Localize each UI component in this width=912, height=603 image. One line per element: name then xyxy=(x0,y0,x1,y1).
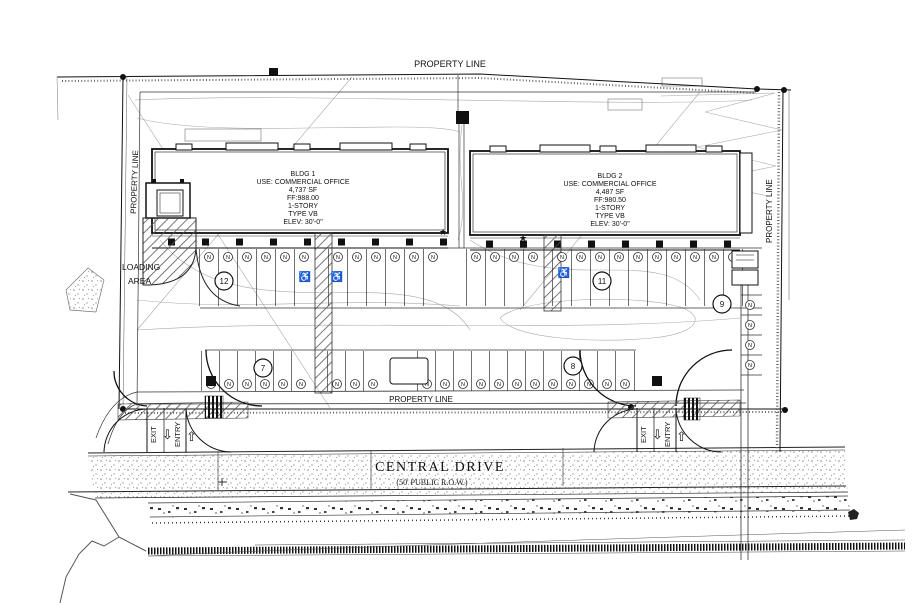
keynote-12: 12 xyxy=(220,277,229,286)
keynote-7: 7 xyxy=(261,364,266,373)
parking-stall-marker: N xyxy=(264,255,268,261)
entry-arrow-icon: ⇧ xyxy=(676,429,687,444)
parking-stall-marker: N xyxy=(461,382,465,388)
survey-point xyxy=(754,86,760,92)
entry-arrow-icon: ⇧ xyxy=(186,429,197,444)
parking-stall-marker: N xyxy=(748,363,752,369)
parking-stall-marker: N xyxy=(474,255,478,261)
street-name: CENTRAL DRIVE xyxy=(375,460,505,475)
exit-label-left: EXIT xyxy=(149,426,158,443)
loading-area-label-1: LOADING xyxy=(122,262,160,272)
parking-stall-marker: N xyxy=(512,255,516,261)
bldg1-stories: 1-STORY xyxy=(288,203,318,210)
keynote-9: 9 xyxy=(720,300,725,309)
exit-label-right: EXIT xyxy=(639,426,648,443)
parking-stall-marker: N xyxy=(748,343,752,349)
parking-stall-marker: N xyxy=(336,255,340,261)
street-row-label: (50' PUBLIC R.O.W.) xyxy=(396,478,467,487)
keynote-11: 11 xyxy=(598,277,607,286)
bldg2-type: TYPE VB xyxy=(595,213,625,220)
parking-stall-marker: N xyxy=(515,382,519,388)
bldg2-elev: ELEV: 30'-0" xyxy=(590,221,630,228)
parking-stall-marker: N xyxy=(299,382,303,388)
star-marker-icon: ★ xyxy=(519,233,527,243)
parking-stall-marker: N xyxy=(353,382,357,388)
parking-stall-marker: N xyxy=(533,382,537,388)
parking-stall-marker: N xyxy=(598,255,602,261)
parking-stall-marker: N xyxy=(655,255,659,261)
bldg1-name: BLDG 1 xyxy=(291,171,316,178)
bldg1-use: USE: COMMERCIAL OFFICE xyxy=(256,179,349,186)
bldg1-type: TYPE VB xyxy=(288,211,318,218)
parking-stall-marker: N xyxy=(636,255,640,261)
driveway-left xyxy=(104,350,262,452)
parking-stall-marker: N xyxy=(560,255,564,261)
parking-stall-marker: N xyxy=(712,255,716,261)
parking-stall-marker: N xyxy=(227,382,231,388)
bldg2-area: 4,487 SF xyxy=(596,189,624,196)
parking-stall-marker: N xyxy=(605,382,609,388)
parking-stall-marker: N xyxy=(748,323,752,329)
accessible-parking-icon: ♿ xyxy=(558,266,570,279)
parking-stall-marker: N xyxy=(674,255,678,261)
parking-stall-marker: N xyxy=(283,255,287,261)
bldg1-ff: FF:988.00 xyxy=(287,195,319,202)
monument-marker xyxy=(269,68,278,75)
parking-stall-marker: N xyxy=(281,382,285,388)
contour-lines xyxy=(128,77,782,408)
parking-stall-marker: N xyxy=(579,255,583,261)
survey-point xyxy=(120,74,126,80)
entry-label-right: ENTRY xyxy=(663,422,672,447)
parking-stall-marker: N xyxy=(207,255,211,261)
keynote-8: 8 xyxy=(571,362,576,371)
bldg1-area: 4,737 SF xyxy=(289,187,317,194)
utility-box xyxy=(456,111,469,124)
parking-stall-marker: N xyxy=(479,382,483,388)
utility-lines xyxy=(456,75,469,248)
existing-structures xyxy=(185,78,702,141)
parking-stall-marker: N xyxy=(493,255,497,261)
entry-label-left: ENTRY xyxy=(173,422,182,447)
parking-stall-marker: N xyxy=(393,255,397,261)
site-plan-drawing: NNNNNNNNNNNNNNNNNNNNNNNNNNNNNNNNNNNNNNNN… xyxy=(0,0,912,603)
landscape-patch xyxy=(66,268,104,312)
lower-road-stripes xyxy=(148,496,905,556)
bldg2-stories: 1-STORY xyxy=(595,205,625,212)
bldg2-name: BLDG 2 xyxy=(598,173,623,180)
terrain-lines xyxy=(60,494,146,603)
parking-stall-marker: N xyxy=(371,382,375,388)
parking-stall-marker: N xyxy=(412,255,416,261)
site-plan-canvas: NNNNNNNNNNNNNNNNNNNNNNNNNNNNNNNNNNNNNNNN… xyxy=(0,0,912,603)
parking-stall-marker: N xyxy=(335,382,339,388)
parking-stall-marker: N xyxy=(531,255,535,261)
property-line-label-right: PROPERTY LINE xyxy=(765,179,774,243)
parking-stall-marker: N xyxy=(443,382,447,388)
star-marker-icon: ★ xyxy=(439,227,447,237)
parking-stall-marker: N xyxy=(748,303,752,309)
walkway-hatch xyxy=(315,233,561,393)
parking-stall-marker: N xyxy=(302,255,306,261)
accessible-parking-icon: ♿ xyxy=(299,270,311,283)
survey-point xyxy=(781,87,787,93)
loading-area-label-2: AREA xyxy=(128,276,151,286)
parking-stall-marker: N xyxy=(374,255,378,261)
parking-stall-marker: N xyxy=(245,255,249,261)
bldg2-ff: FF:980.50 xyxy=(594,197,626,204)
bldg1-elev: ELEV: 30'-0" xyxy=(283,219,323,226)
parking-stall-marker: N xyxy=(245,382,249,388)
property-line-label-middle: PROPERTY LINE xyxy=(389,395,453,404)
parking-stall-marker: N xyxy=(551,382,555,388)
property-line-label-left: PROPERTY LINE xyxy=(129,150,140,214)
parking-stall-marker: N xyxy=(226,255,230,261)
parking-stall-marker: N xyxy=(263,382,267,388)
property-line-label-top: PROPERTY LINE xyxy=(414,59,486,69)
parking-layer: NNNNNNNNNNNNNNNNNNNNNNNNNNNNNNNNNNNNNNNN… xyxy=(200,249,763,391)
bldg2-use: USE: COMMERCIAL OFFICE xyxy=(563,181,656,188)
exit-arrow-icon: ⇩ xyxy=(162,427,173,442)
keynote-bubbles: 12 11 9 7 8 xyxy=(215,272,731,377)
parking-stall-marker: N xyxy=(693,255,697,261)
accessible-parking-icon: ♿ xyxy=(331,270,343,283)
parking-stall-marker: N xyxy=(431,255,435,261)
exit-arrow-icon: ⇩ xyxy=(652,427,663,442)
parking-stall-marker: N xyxy=(617,255,621,261)
survey-point xyxy=(782,407,788,413)
parking-stall-marker: N xyxy=(355,255,359,261)
parking-stall-marker: N xyxy=(569,382,573,388)
parking-stall-marker: N xyxy=(623,382,627,388)
parking-stall-marker: N xyxy=(497,382,501,388)
trash-enclosure xyxy=(146,179,190,218)
